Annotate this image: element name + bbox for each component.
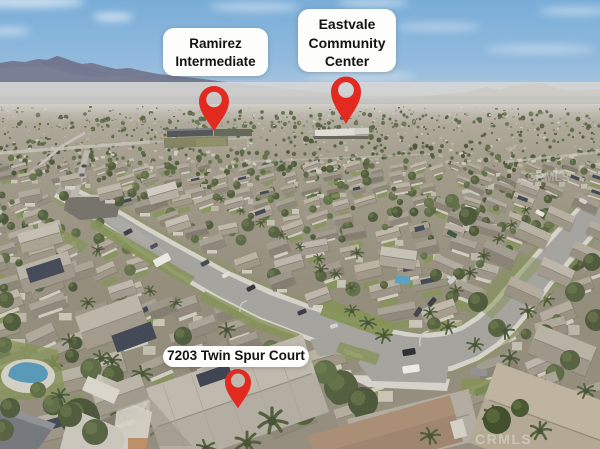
svg-text:CRMLS: CRMLS xyxy=(527,170,570,184)
svg-text:CRMLS: CRMLS xyxy=(475,431,532,447)
